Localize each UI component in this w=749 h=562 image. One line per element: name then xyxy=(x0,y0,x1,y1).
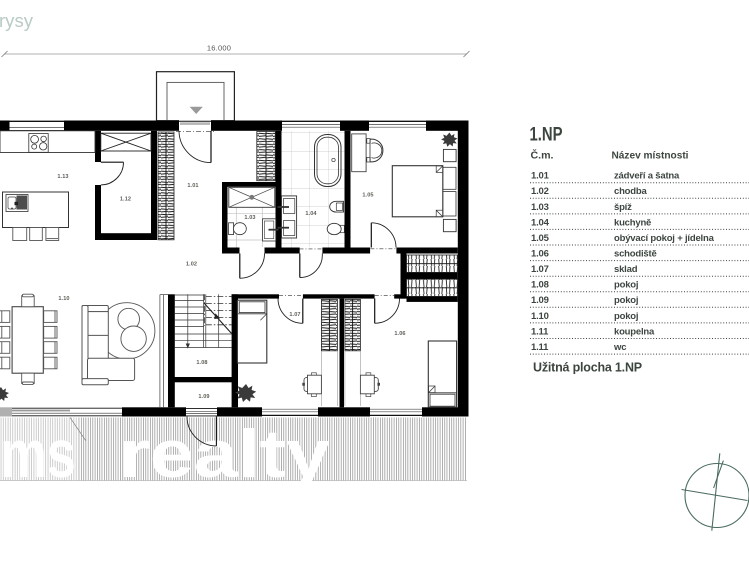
svg-text:1.06: 1.06 xyxy=(394,331,405,337)
svg-text:schodiště: schodiště xyxy=(614,249,657,260)
svg-text:1.11: 1.11 xyxy=(531,342,549,353)
svg-text:1.07: 1.07 xyxy=(289,312,300,318)
svg-text:1.02: 1.02 xyxy=(186,262,197,268)
svg-text:sklad: sklad xyxy=(614,264,638,275)
svg-text:obývací pokoj + jídelna: obývací pokoj + jídelna xyxy=(614,233,715,244)
svg-text:pokoj: pokoj xyxy=(614,295,638,306)
svg-text:1.08: 1.08 xyxy=(531,280,549,291)
svg-text:koupelna: koupelna xyxy=(614,326,655,337)
svg-text:wc: wc xyxy=(613,342,626,353)
svg-text:ms: ms xyxy=(0,416,76,492)
svg-text:1.04: 1.04 xyxy=(531,217,550,228)
svg-text:špíž: špíž xyxy=(614,202,632,213)
svg-text:1.12: 1.12 xyxy=(120,197,131,203)
svg-text:Č.m.: Č.m. xyxy=(531,148,554,161)
svg-text:Užitná plocha 1.NP: Užitná plocha 1.NP xyxy=(533,361,642,375)
svg-text:1.02: 1.02 xyxy=(531,186,549,197)
svg-text:rysy: rysy xyxy=(0,11,33,31)
svg-text:1.10: 1.10 xyxy=(58,296,69,302)
svg-text:1.03: 1.03 xyxy=(531,202,549,213)
svg-text:1.07: 1.07 xyxy=(531,264,549,275)
svg-text:realty: realty xyxy=(119,416,330,492)
svg-text:1.13: 1.13 xyxy=(57,174,68,180)
svg-text:1.05: 1.05 xyxy=(362,193,373,199)
svg-text:pokoj: pokoj xyxy=(614,280,638,291)
svg-text:chodba: chodba xyxy=(614,186,647,197)
svg-text:Název místnosti: Název místnosti xyxy=(612,150,689,161)
svg-text:1.03: 1.03 xyxy=(244,215,255,221)
svg-text:16.000: 16.000 xyxy=(207,44,231,53)
svg-text:kuchyně: kuchyně xyxy=(614,217,651,228)
svg-text:zádveří a šatna: zádveří a šatna xyxy=(614,171,680,182)
svg-text:1.09: 1.09 xyxy=(198,394,209,400)
svg-text:pokoj: pokoj xyxy=(614,311,638,322)
svg-text:1.NP: 1.NP xyxy=(530,125,563,146)
svg-text:1.09: 1.09 xyxy=(531,295,549,306)
svg-text:1.10: 1.10 xyxy=(531,311,549,322)
svg-text:1.11: 1.11 xyxy=(531,326,549,337)
svg-text:1.04: 1.04 xyxy=(305,211,317,217)
svg-text:1.01: 1.01 xyxy=(187,183,198,189)
svg-text:1.08: 1.08 xyxy=(196,360,207,366)
svg-text:1.01: 1.01 xyxy=(531,171,550,182)
svg-text:1.05: 1.05 xyxy=(531,233,550,244)
svg-text:1.06: 1.06 xyxy=(531,249,549,260)
